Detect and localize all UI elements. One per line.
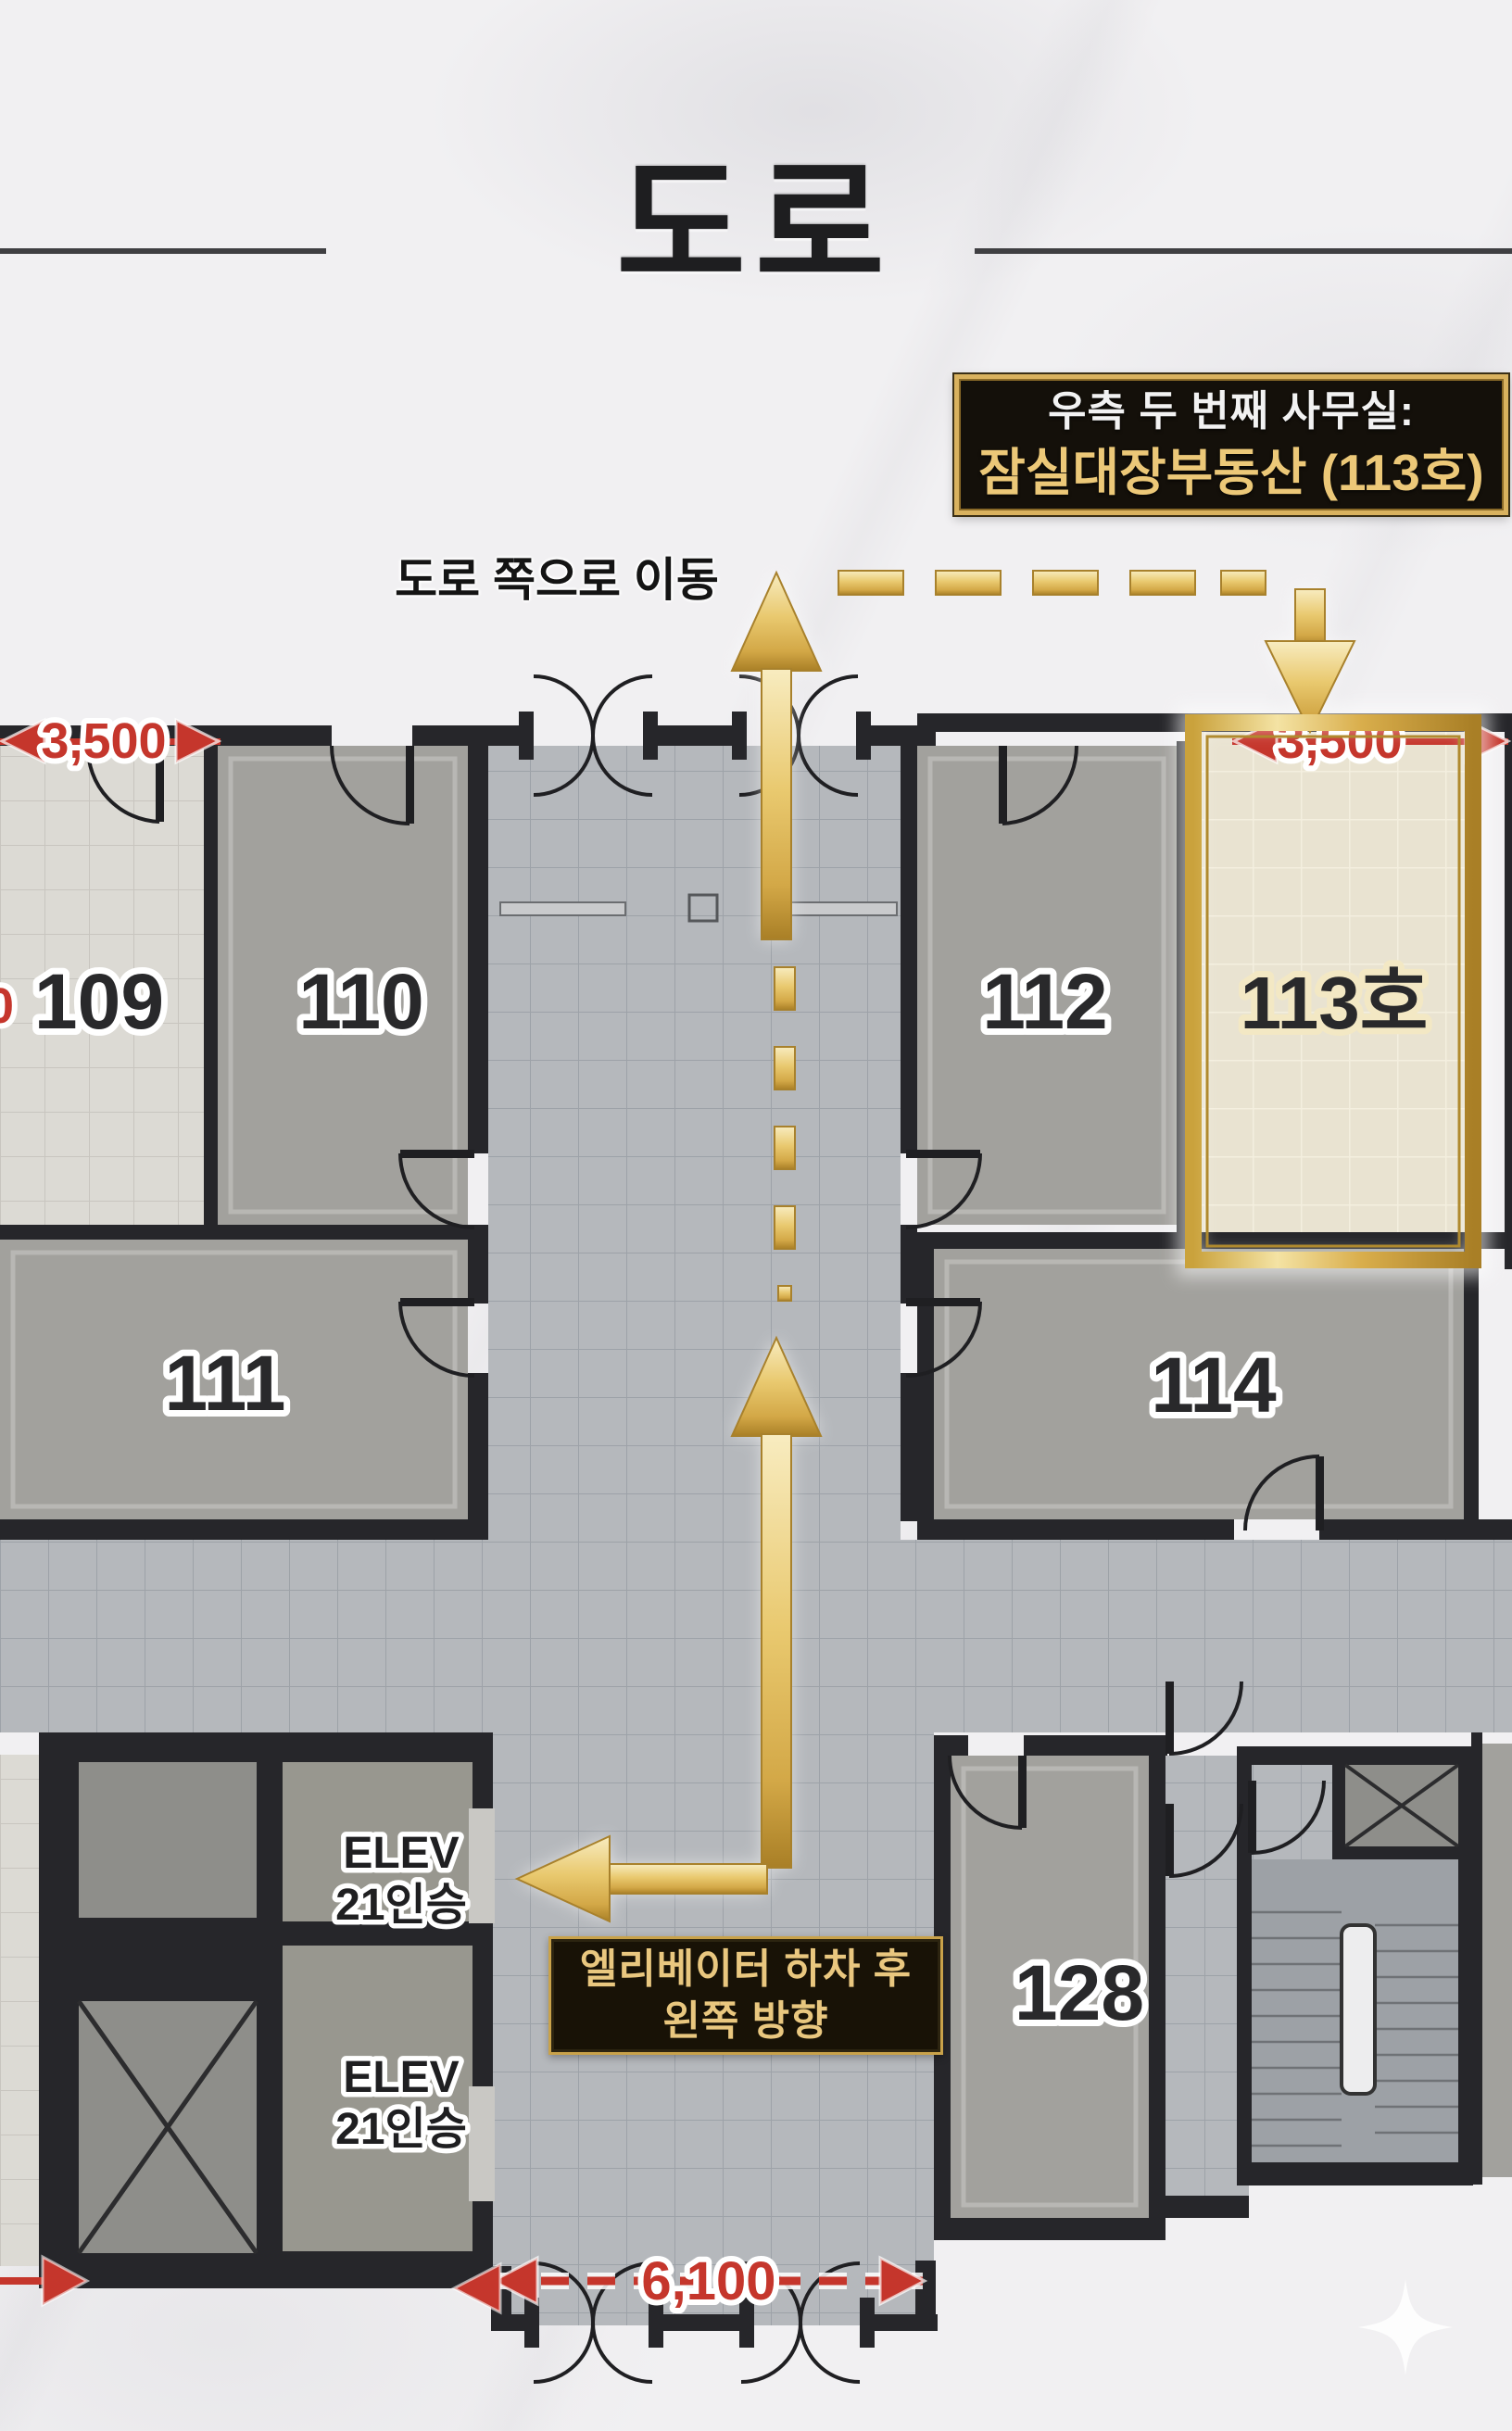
room-label-111: 111 <box>165 1340 286 1427</box>
callout-office-name: 잠실대장부동산 (113호) <box>959 439 1504 506</box>
elevator-door-top <box>469 1808 495 1923</box>
dimension-bottom-label: 6,100 <box>641 2251 775 2311</box>
elevator-label-top-line2: 21인승 <box>335 1881 467 1930</box>
elevator-door-bottom <box>469 2086 495 2201</box>
destination-callout: 우측 두 번째 사무실: 잠실대장부동산 (113호) <box>954 374 1508 515</box>
elevator-label-top-line1: ELEV <box>343 1829 459 1878</box>
route-trail-top <box>838 571 1266 595</box>
sparkle-icon <box>1358 2279 1453 2375</box>
page-title: 도로 <box>565 156 945 296</box>
title-rule-right <box>975 248 1512 254</box>
elevator-label-bottom-line2: 21인승 <box>335 2105 467 2154</box>
room-label-113: 113호 <box>1241 962 1429 1044</box>
elevator-label-bottom-line1: ELEV <box>343 2053 459 2102</box>
move-to-road-label: 도로 쪽으로 이동 <box>367 543 747 610</box>
room-label-109: 109 <box>34 958 164 1045</box>
elevator-instruction-box: 엘리베이터 하차 후 왼쪽 방향 <box>548 1936 943 2055</box>
room-label-110: 110 <box>298 958 424 1045</box>
dimension-edge-digit: 0 <box>0 978 14 1034</box>
callout-direction-text: 우측 두 번째 사무실: <box>959 384 1504 439</box>
room-label-114: 114 <box>1151 1341 1277 1429</box>
floor-plan: 3,500 <box>0 0 1512 2431</box>
title-rule-left <box>0 248 326 254</box>
instruction-line1: 엘리베이터 하차 후 <box>551 1944 940 1996</box>
stair-newel <box>1342 1925 1375 2094</box>
dimension-left-label: 3,500 <box>41 713 166 769</box>
room-label-128: 128 <box>1014 1949 1144 2036</box>
instruction-line2: 왼쪽 방향 <box>551 1996 940 2047</box>
building-floorplan-guide: 3,500 <box>0 0 1512 2431</box>
room-label-112: 112 <box>982 958 1108 1045</box>
